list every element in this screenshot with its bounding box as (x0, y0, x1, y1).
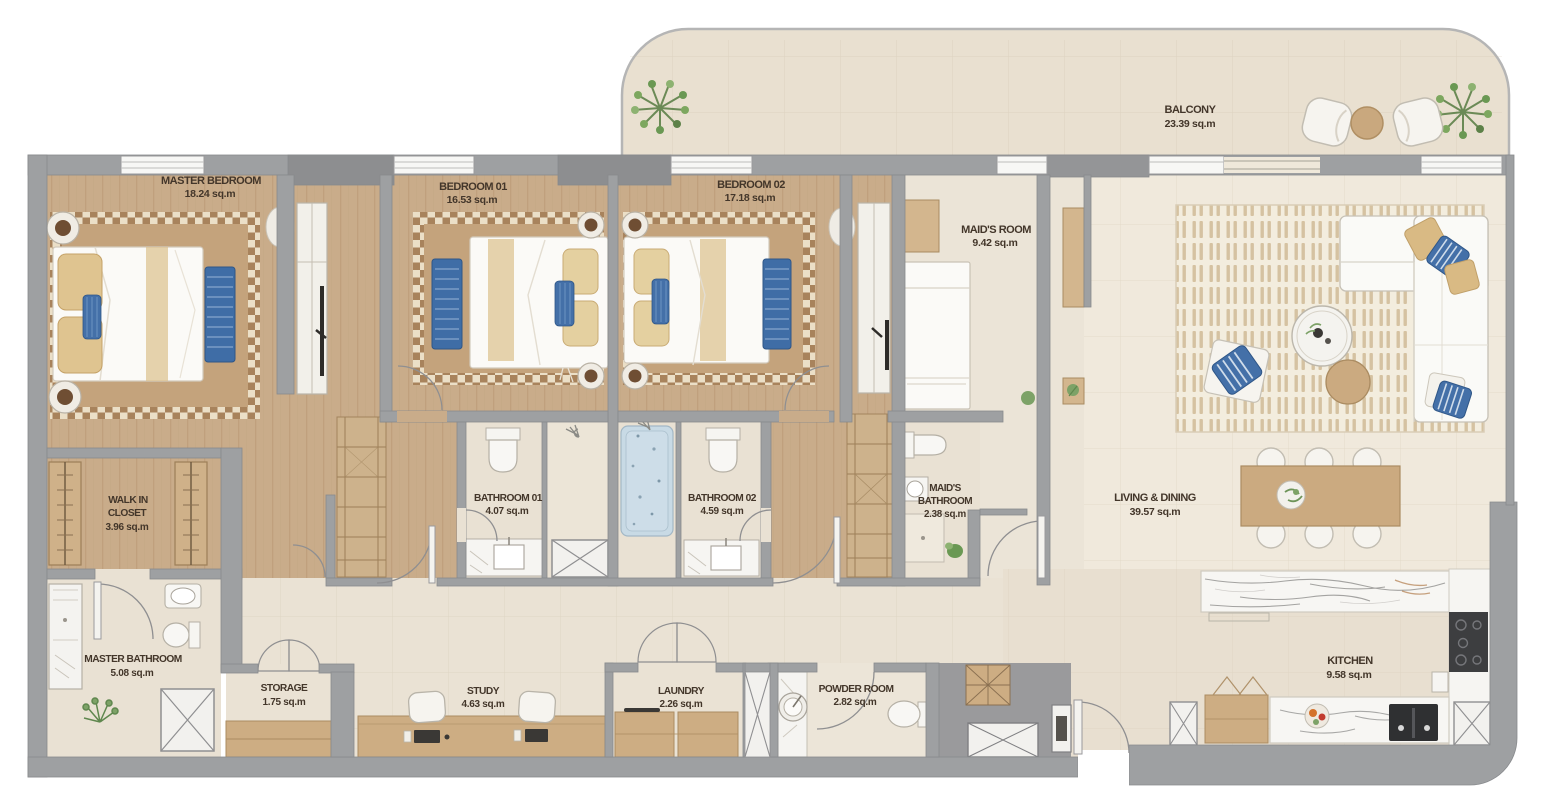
svg-text:WALK IN: WALK IN (108, 495, 148, 506)
svg-text:17.18 sq.m: 17.18 sq.m (725, 192, 776, 204)
svg-text:BALCONY: BALCONY (1165, 104, 1217, 116)
svg-text:MASTER BATHROOM: MASTER BATHROOM (84, 654, 182, 665)
svg-text:2.38 sq.m: 2.38 sq.m (924, 509, 967, 520)
svg-text:BATHROOM 01: BATHROOM 01 (474, 493, 543, 504)
svg-text:BATHROOM 02: BATHROOM 02 (688, 493, 757, 504)
svg-text:STORAGE: STORAGE (261, 683, 308, 694)
svg-text:BATHROOM: BATHROOM (918, 496, 972, 507)
svg-text:16.53 sq.m: 16.53 sq.m (447, 194, 498, 206)
svg-text:CLOSET: CLOSET (108, 508, 148, 519)
svg-text:BEDROOM 02: BEDROOM 02 (717, 179, 785, 191)
svg-text:1.75 sq.m: 1.75 sq.m (263, 697, 306, 708)
svg-text:POWDER ROOM: POWDER ROOM (819, 684, 894, 695)
svg-text:9.58 sq.m: 9.58 sq.m (1326, 669, 1371, 681)
svg-text:5.08 sq.m: 5.08 sq.m (111, 668, 154, 679)
svg-text:MASTER BEDROOM: MASTER BEDROOM (161, 175, 261, 187)
svg-text:4.59 sq.m: 4.59 sq.m (701, 506, 744, 517)
svg-text:18.24 sq.m: 18.24 sq.m (185, 188, 236, 200)
svg-text:3.96 sq.m: 3.96 sq.m (106, 522, 149, 533)
svg-text:LAUNDRY: LAUNDRY (658, 686, 705, 697)
svg-text:4.63 sq.m: 4.63 sq.m (462, 699, 505, 710)
svg-text:23.39 sq.m: 23.39 sq.m (1165, 118, 1216, 130)
svg-text:MAID'S ROOM: MAID'S ROOM (961, 224, 1031, 236)
svg-text:2.82 sq.m: 2.82 sq.m (834, 697, 877, 708)
svg-text:LIVING & DINING: LIVING & DINING (1114, 492, 1196, 504)
svg-text:9.42 sq.m: 9.42 sq.m (972, 237, 1017, 249)
svg-text:KITCHEN: KITCHEN (1327, 655, 1373, 667)
svg-text:MAID'S: MAID'S (929, 483, 961, 494)
svg-text:STUDY: STUDY (467, 686, 500, 697)
svg-text:4.07 sq.m: 4.07 sq.m (486, 506, 529, 517)
svg-text:2.26 sq.m: 2.26 sq.m (660, 699, 703, 710)
svg-text:BEDROOM 01: BEDROOM 01 (439, 181, 507, 193)
svg-text:39.57 sq.m: 39.57 sq.m (1130, 506, 1181, 518)
